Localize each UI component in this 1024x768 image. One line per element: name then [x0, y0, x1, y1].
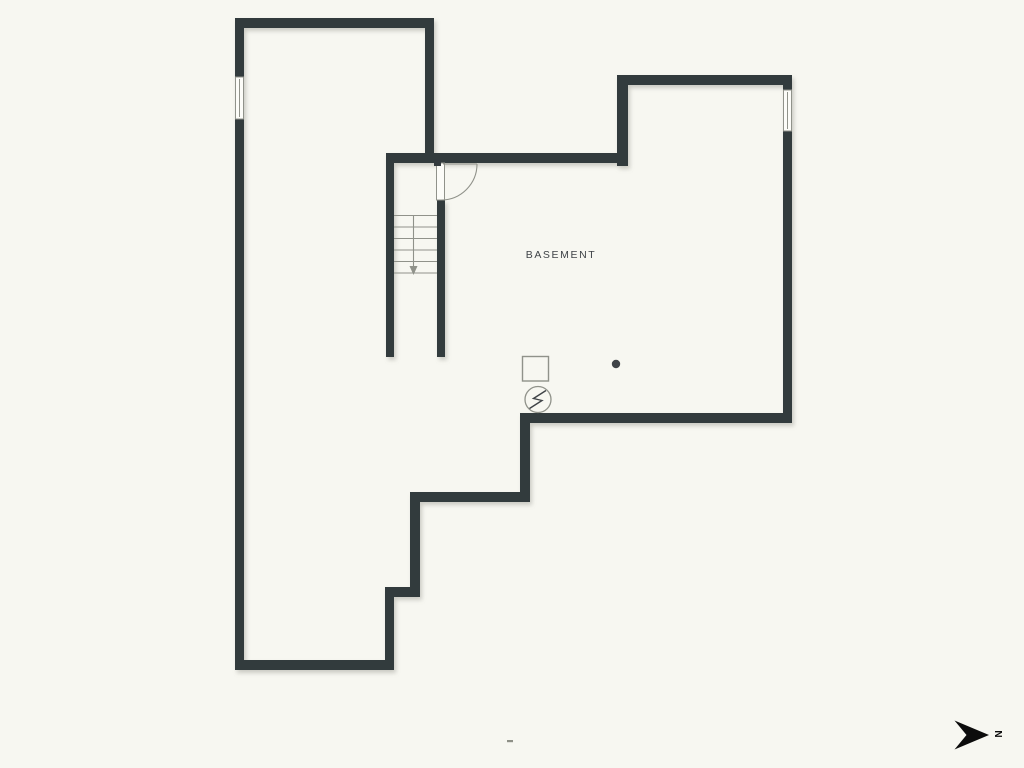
small-tick-mark: [507, 740, 513, 742]
north-label: N: [992, 730, 1003, 737]
wall-exterior-bottom: [235, 660, 394, 670]
room-label: BASEMENT: [526, 249, 597, 261]
wall-upper-left-top: [235, 18, 434, 28]
floorplan-page: BASEMENT N: [0, 0, 1024, 768]
column-dot-icon: [612, 360, 620, 368]
wall-upper-left-right: [425, 18, 434, 163]
wall-step-vertical-2: [410, 492, 420, 597]
door-opening: [437, 163, 445, 200]
floorplan-canvas: BASEMENT N: [0, 0, 1024, 768]
wall-stair-left: [386, 153, 394, 357]
wall-right-section-top: [617, 75, 792, 85]
wall-right-section-left: [617, 75, 628, 166]
page-background: [0, 0, 1024, 768]
wall-step-vertical-3: [385, 587, 394, 670]
wall-interior-horizontal: [386, 153, 628, 163]
door-hinge: [434, 160, 441, 167]
window-left-icon: [236, 77, 244, 119]
wall-stair-right: [437, 200, 445, 357]
wall-step-vertical-1: [520, 413, 530, 502]
window-right-icon: [784, 90, 792, 131]
wall-right-section-bottom: [520, 413, 792, 423]
wall-step-horizontal-1: [410, 492, 530, 502]
